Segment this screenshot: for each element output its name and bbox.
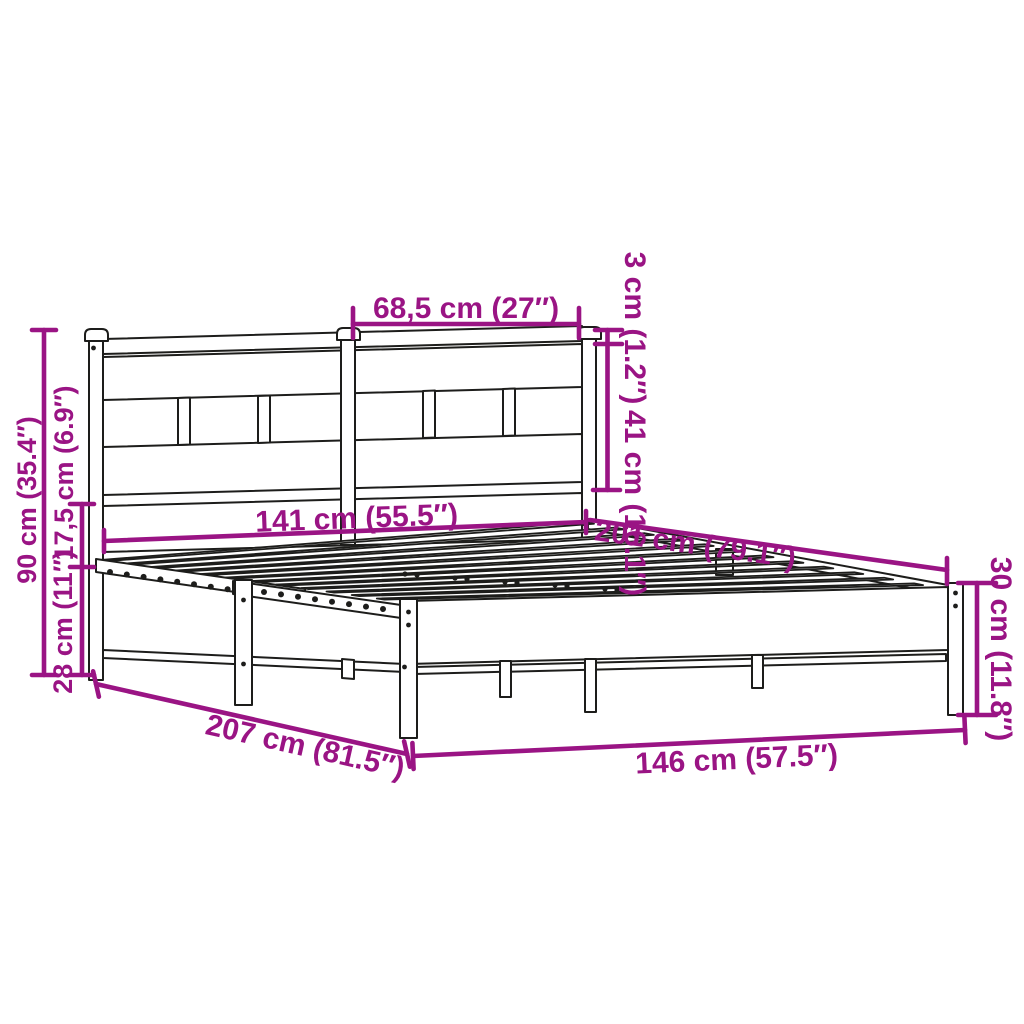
label-total-length: 207 cm (81.5″)	[203, 708, 408, 785]
headboard-post-left-cap	[85, 329, 108, 341]
foot-rail	[408, 587, 948, 664]
leg-screw	[241, 662, 246, 667]
headboard-post-left	[89, 341, 103, 680]
leg-foot-near-corner	[400, 599, 417, 738]
bed-frame-drawing	[85, 326, 963, 738]
label-panel-to-rail-gap: 17,5 cm (6.9″)	[49, 385, 79, 560]
label-headboard-height: 90 cm (35.4″)	[12, 416, 42, 584]
side-stretcher-near	[103, 650, 405, 672]
stub-leg	[500, 661, 511, 697]
leg-screw	[953, 604, 958, 609]
headboard-spacer-bar	[178, 398, 190, 446]
headboard-spacer-bar	[258, 396, 270, 444]
leg-foot-far-corner	[948, 583, 963, 715]
headboard-spacer-bar	[423, 391, 435, 439]
headboard-spacer-bar	[503, 389, 515, 437]
post-screw	[91, 346, 96, 351]
label-side-rail-height: 30 cm (11.8″)	[984, 557, 1017, 741]
headboard-post-mid-cap	[337, 328, 360, 340]
label-under-bed-clearance: 28 cm (11″)	[48, 550, 78, 694]
leg-screw	[953, 591, 958, 596]
leg-screw	[402, 665, 407, 670]
label-headboard-rail-thickness: 3 cm (1.2″)	[618, 252, 651, 405]
label-headboard-top-width: 68,5 cm (27″)	[373, 292, 559, 325]
stub-leg	[585, 659, 596, 712]
bed-frame-dimension-diagram: 68,5 cm (27″) 3 cm (1.2″) 41 cm (16.1″) …	[0, 0, 1024, 1024]
headboard-post-right	[582, 339, 596, 525]
label-headboard-panel-height: 41 cm (16.1″)	[618, 410, 651, 596]
leg-screw	[406, 610, 411, 615]
dim-headboard-rail-panel-line	[593, 330, 622, 490]
leg-screw	[406, 623, 411, 628]
stub-leg	[752, 655, 763, 688]
stretcher-stub	[342, 659, 354, 679]
diagram-canvas: 68,5 cm (27″) 3 cm (1.2″) 41 cm (16.1″) …	[0, 0, 1024, 1024]
leg-screw	[241, 598, 246, 603]
